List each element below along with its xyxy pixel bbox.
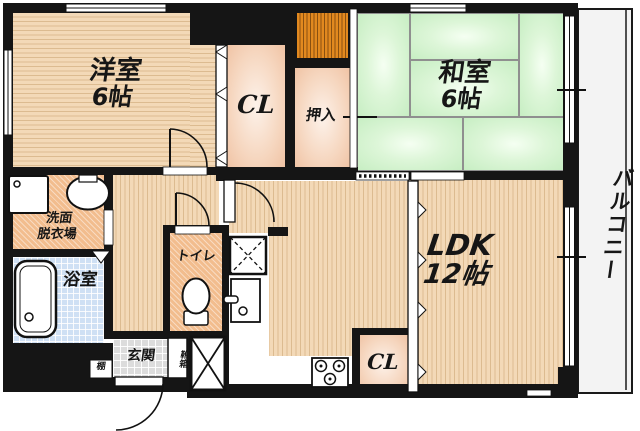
door-swing xyxy=(224,180,274,222)
toilet-icon xyxy=(183,279,210,326)
room-size: 6帖 xyxy=(56,85,167,109)
washroom-label-line1: 洗面 xyxy=(45,211,73,226)
shaft-box xyxy=(191,337,225,390)
room-size: 12帖 xyxy=(398,261,514,289)
floor-plan: 洋室 6帖 和室 6帖 LDK 12帖 CL CL 押入 洗面 脱衣場 浴室 ト… xyxy=(0,0,640,431)
room-name: 洋室 xyxy=(88,56,144,86)
kitchen-sink-icon xyxy=(224,279,260,322)
shelf-label: 棚 xyxy=(89,363,112,372)
door-swing xyxy=(115,377,163,430)
closet-lower-label: CL xyxy=(352,351,413,372)
japanese-room-label: 和室 6帖 xyxy=(405,60,520,111)
bath-door-icon xyxy=(92,251,110,263)
stove-icon xyxy=(312,358,348,387)
ldk-label: LDK 12帖 xyxy=(398,231,518,288)
sink-icon xyxy=(67,175,109,210)
washing-machine-icon xyxy=(9,176,48,213)
closet-upper-label: CL xyxy=(225,92,287,118)
washroom-label-line2: 脱衣場 xyxy=(11,227,103,243)
door-swing xyxy=(175,193,210,234)
toilet-label: トイレ xyxy=(165,250,227,263)
bathtub-icon xyxy=(15,261,56,337)
door-swing xyxy=(163,129,207,175)
washroom-label: 洗面 脱衣場 xyxy=(11,211,106,244)
room-size: 6帖 xyxy=(405,87,516,111)
bathroom-label: 浴室 xyxy=(49,272,111,289)
oshiire-label: 押入 xyxy=(290,108,352,123)
entrance-label: 玄関 xyxy=(110,349,172,363)
western-room-label: 洋室 6帖 xyxy=(56,58,171,109)
room-name: LDK xyxy=(425,228,495,262)
room-name: 和室 xyxy=(437,58,493,88)
refrigerator-space xyxy=(230,237,266,274)
